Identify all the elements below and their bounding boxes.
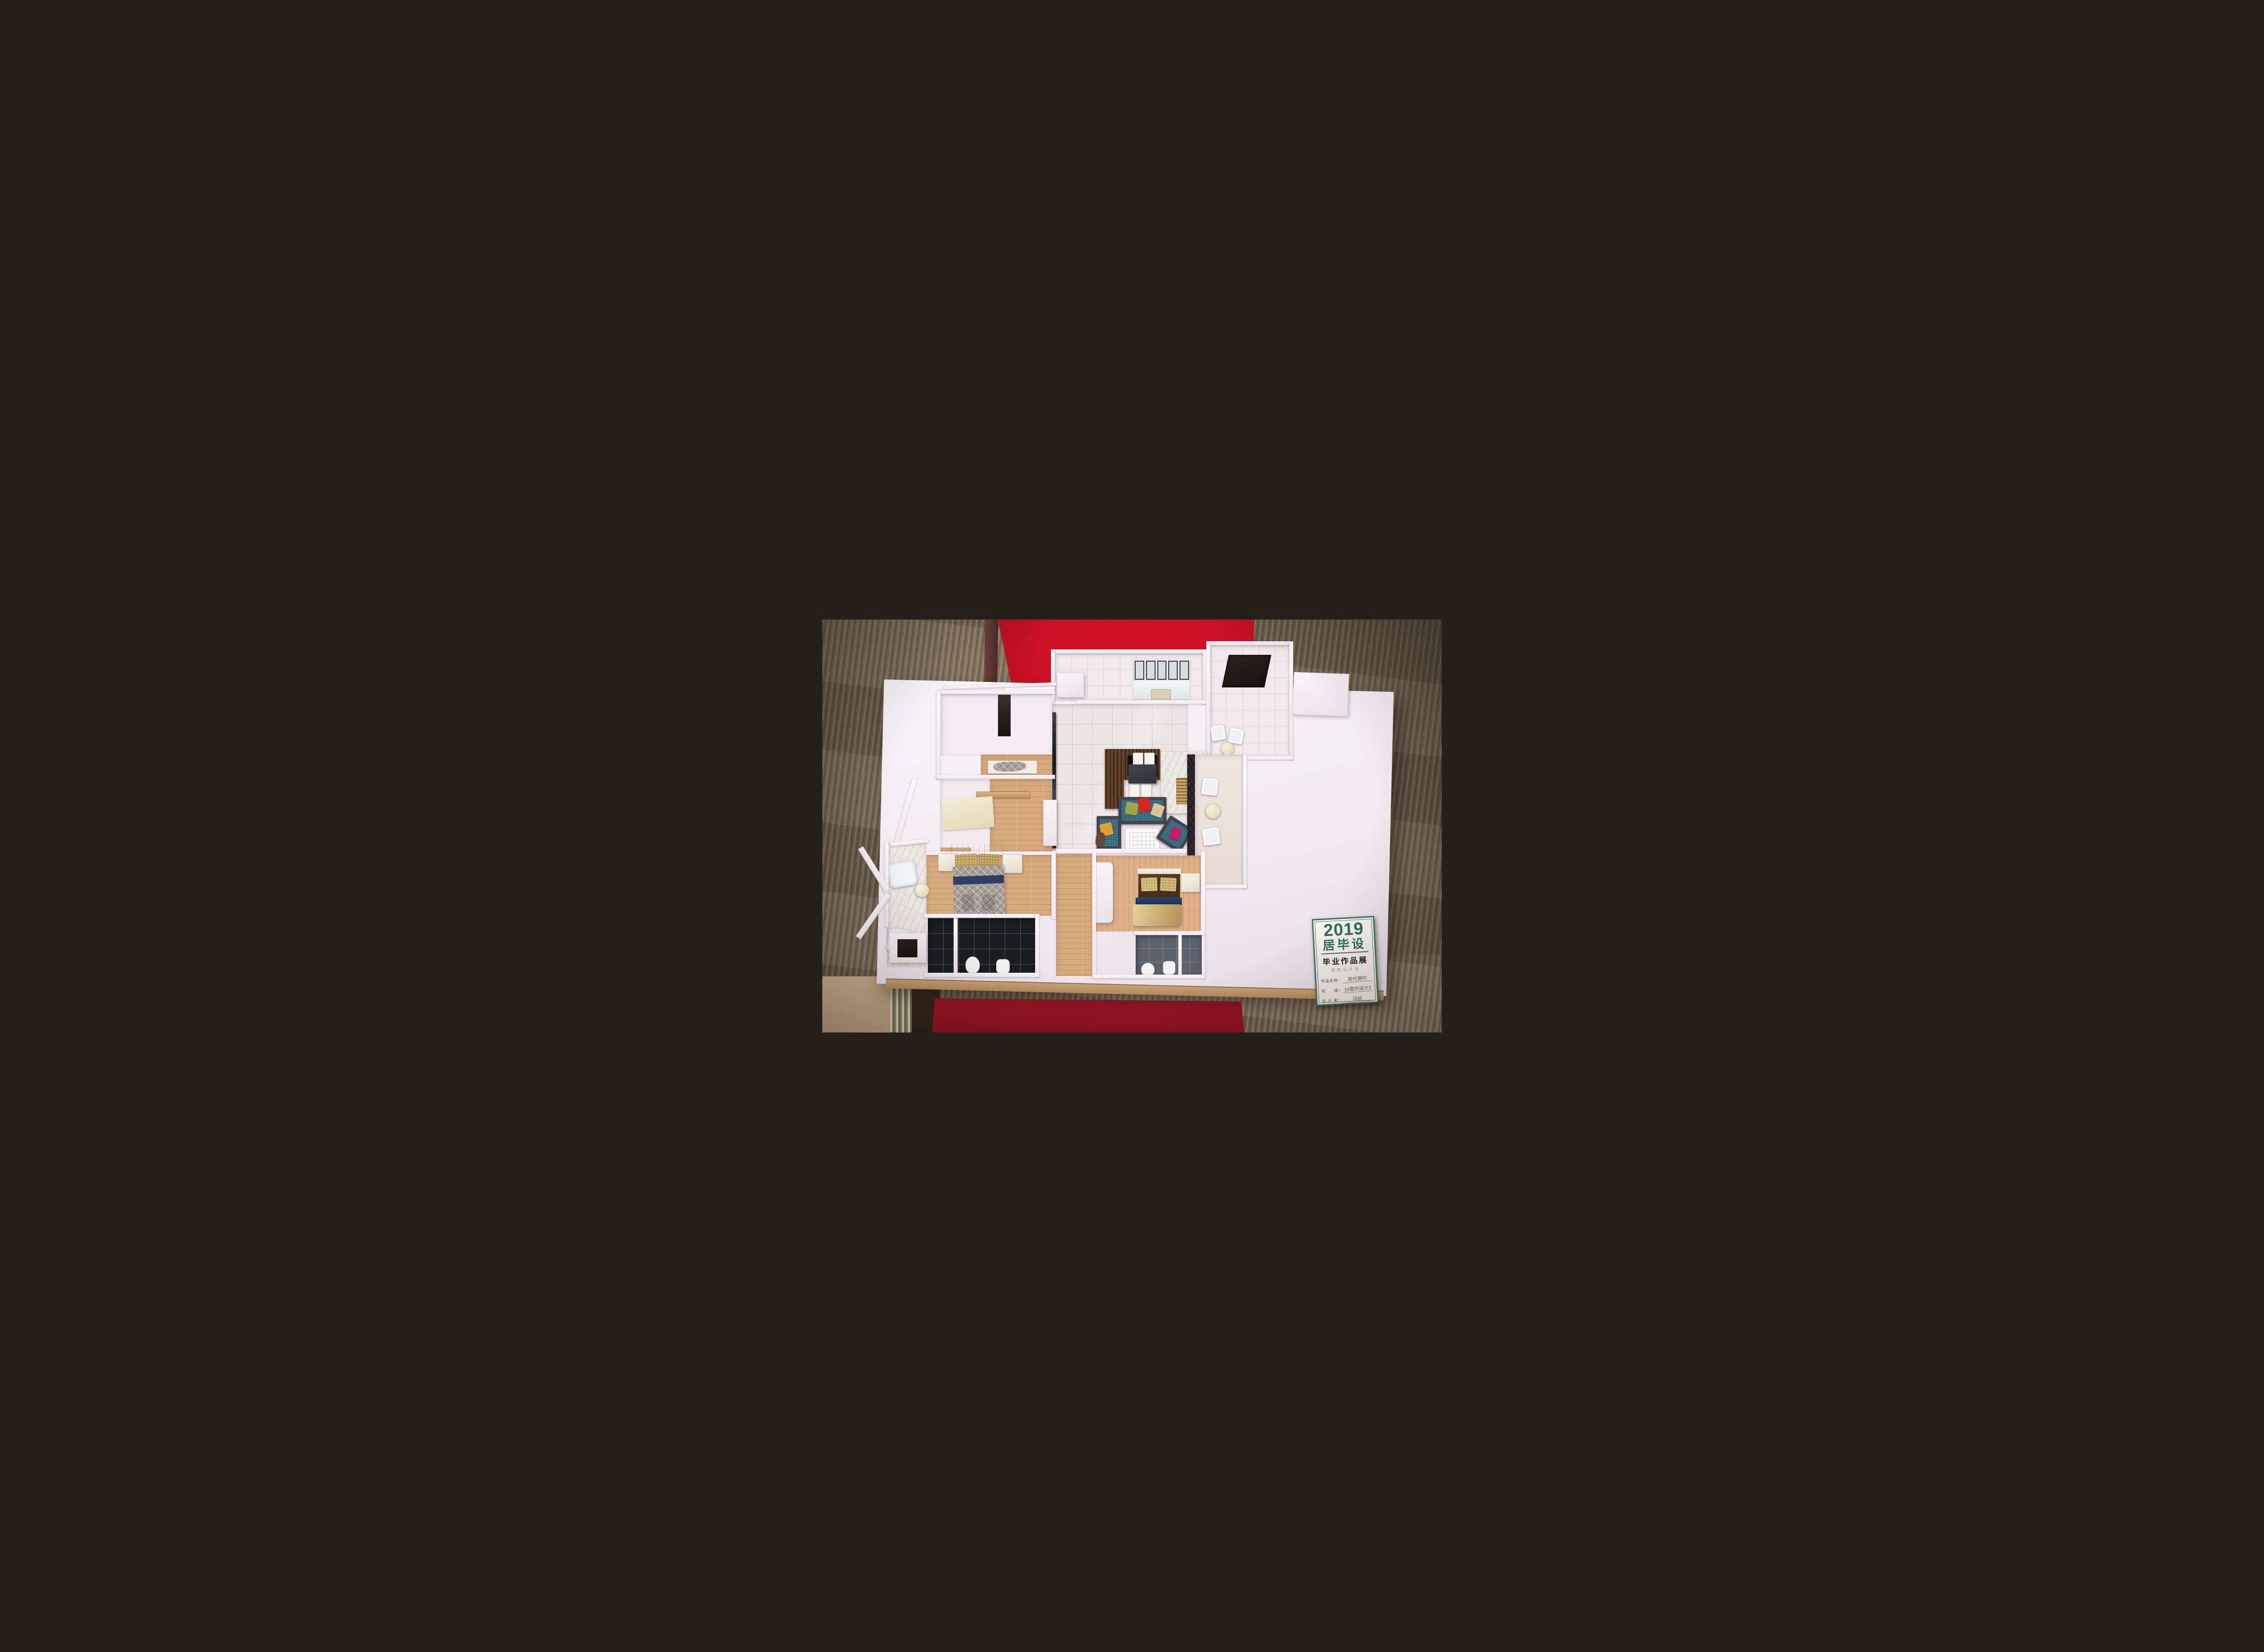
bedroom2-wardrobe (1095, 862, 1113, 923)
cabinet-door-panel (1180, 661, 1189, 680)
bath3-window-opening (1222, 655, 1271, 687)
kitchen-cabinet-run (1134, 659, 1190, 681)
corridor-column-box (1043, 800, 1057, 846)
dining-table (1128, 764, 1156, 783)
bath1-wall-bottom (924, 973, 1040, 977)
bedroom3-wall-face (941, 694, 1052, 756)
balcony-round-table (1205, 803, 1221, 819)
bay-bathtub (887, 859, 919, 889)
bed-navy-runner (953, 875, 1004, 885)
bedroom2-wall-left (1092, 851, 1096, 978)
floor-tan-patch (822, 976, 894, 1032)
cabinet-door-panel (1146, 661, 1156, 680)
field-label: 作品名称： (1321, 977, 1343, 984)
cabinet-door-panel (1135, 661, 1144, 680)
gold-sequin-pillow (1141, 877, 1157, 891)
bedroom2-nightstand (1181, 873, 1200, 892)
photo-viewport: 2019 居毕设 毕业作品展 建筑设计系 作品名称： 现代简约 班 级： 16室… (0, 0, 2264, 1652)
bath1-window-opening (897, 939, 917, 957)
master-headboard (952, 844, 1002, 855)
bath2-sink (1163, 961, 1175, 975)
partition-bedroom3-4 (936, 775, 1055, 779)
field-label: 班 级： (1321, 987, 1343, 994)
wing-wall-top (939, 690, 1055, 694)
bay-marble-table (915, 883, 929, 898)
sofa-main (1118, 797, 1166, 824)
photo-stage: 2019 居毕设 毕业作品展 建筑设计系 作品名称： 现代简约 班 级： 16室… (822, 619, 1442, 1032)
kitchen-wall-bottom (1076, 700, 1207, 704)
card-field-row: 班 级： 16室内设计2 (1321, 985, 1372, 994)
bath1-wall-top (924, 914, 1040, 918)
dining-chair (1141, 784, 1151, 797)
master-wall-right (1051, 851, 1056, 919)
bath1-toilet (965, 956, 980, 974)
card-title: 居毕设 (1317, 936, 1372, 953)
bath3-wall-top (1206, 641, 1293, 645)
bedroom2-headboard (1138, 874, 1180, 893)
dining-chair (1144, 753, 1155, 766)
red-cloth-bottom (932, 993, 1244, 1032)
balcony-armchair (1202, 827, 1221, 846)
corridor-wood-floor (1056, 854, 1093, 976)
bed-foot-cushion (961, 894, 975, 912)
kitchen-utility-unit (1057, 673, 1084, 697)
card-field-row: 作品名称： 现代简约 (1321, 975, 1372, 984)
master-gold-pillow (955, 854, 977, 867)
bath1-sink (996, 959, 1010, 974)
wing-wall-left-upper (936, 690, 940, 779)
kitchen-wall-top (1051, 649, 1207, 653)
bath3-round-table (1221, 742, 1234, 755)
duct-box-top-right (1292, 672, 1349, 716)
gold-sequin-pillow (1160, 877, 1177, 892)
dining-chair (1129, 784, 1140, 797)
study-futon (942, 796, 994, 831)
kitchen-stove (1151, 689, 1171, 699)
cabinet-door-panel (1157, 661, 1167, 680)
bath3-wall-left (1206, 641, 1210, 760)
bath3-armchair (1210, 724, 1226, 741)
exhibition-label-card: 2019 居毕设 毕业作品展 建筑设计系 作品名称： 现代简约 班 级： 16室… (1312, 916, 1379, 1006)
sofa-chaise (1097, 816, 1121, 850)
bedroom2-gold-blanket (1133, 904, 1181, 926)
master-nightstand-right (1002, 854, 1022, 873)
master-bed-quilt (953, 865, 1005, 919)
bed-foot-cushion (982, 894, 995, 911)
block-wall-bottom (1092, 975, 1205, 979)
bath1-wall-right (1035, 914, 1039, 977)
balcony-armchair (1201, 777, 1219, 796)
balcony-wall-right (1243, 754, 1247, 888)
bath1-floor (928, 918, 1036, 973)
bath1-divider (954, 918, 958, 974)
bath2-divider (1178, 934, 1182, 975)
bath2-wall-top (1134, 931, 1204, 935)
living-wall-bottom (1056, 849, 1205, 854)
field-handwritten-value: 16室内设计2 (1343, 985, 1372, 994)
field-handwritten-value: 现代简约 (1342, 975, 1372, 984)
pillow-olive (1125, 802, 1139, 816)
dining-chair (1133, 753, 1143, 766)
cabinet-door-panel (1168, 661, 1178, 680)
bedroom3-door-shadow (998, 695, 1011, 736)
pillow-red (1137, 797, 1151, 812)
